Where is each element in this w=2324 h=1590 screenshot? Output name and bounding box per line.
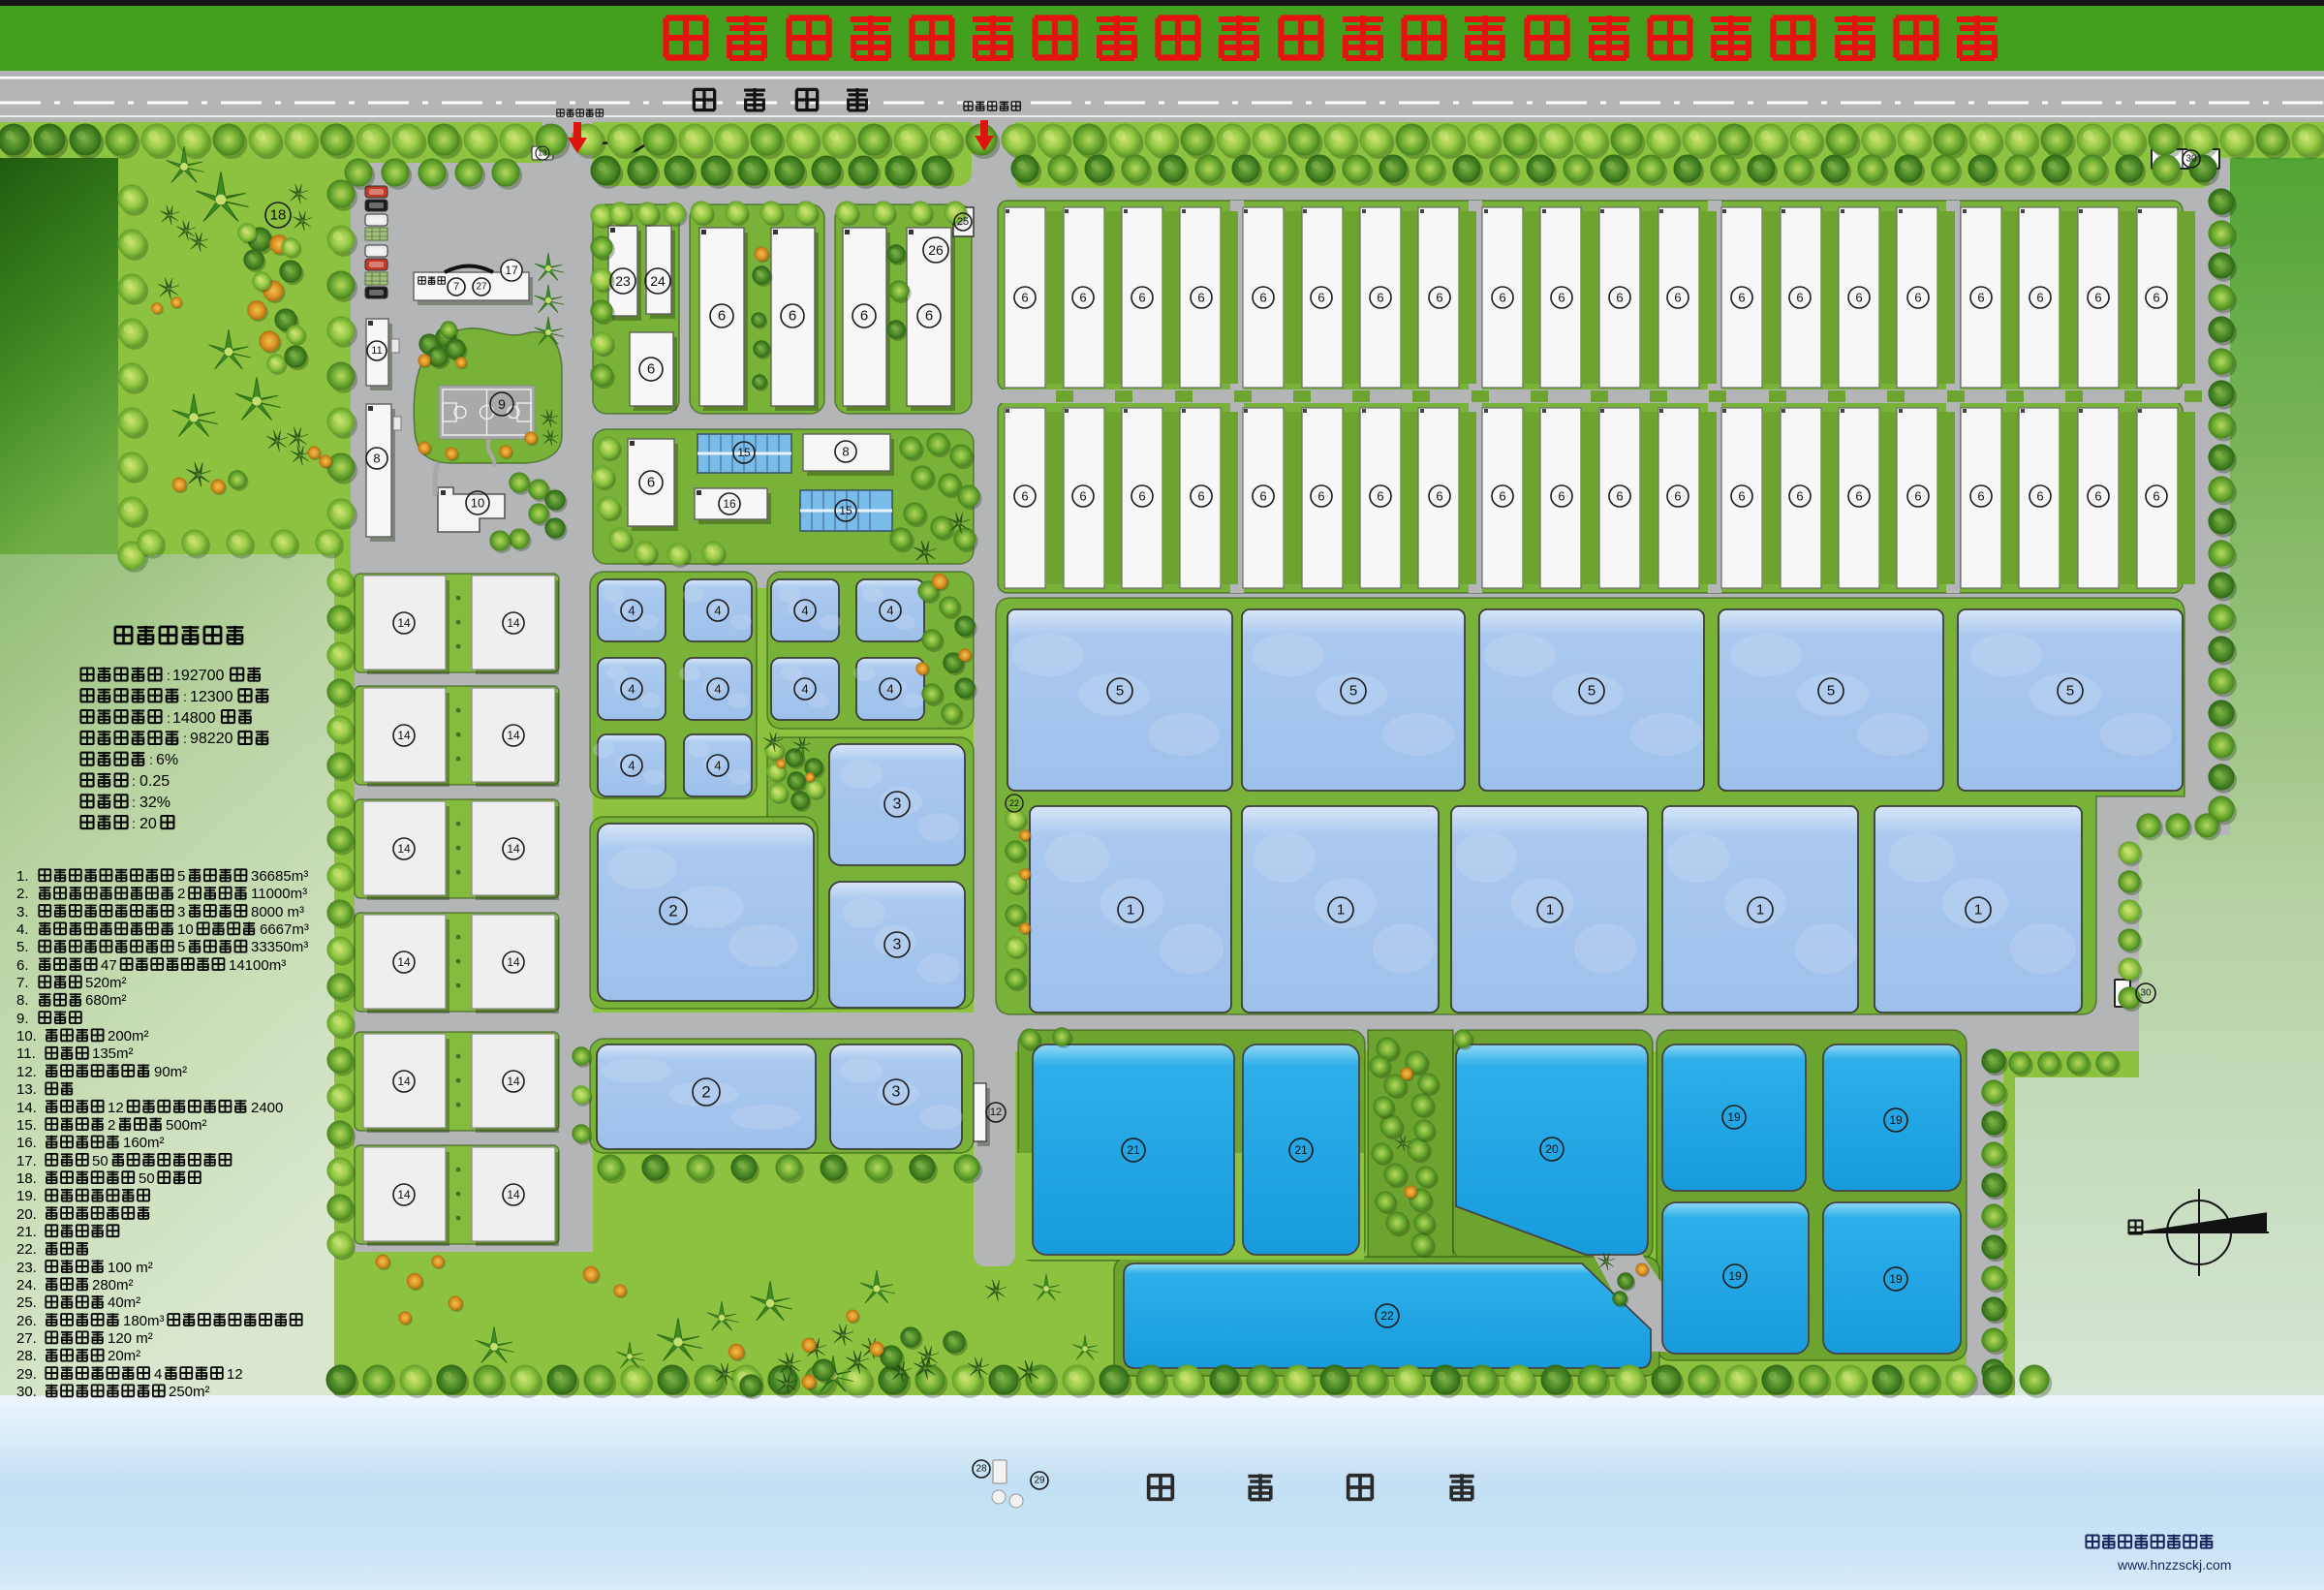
svg-text:14: 14 xyxy=(397,1188,411,1201)
svg-text:3: 3 xyxy=(892,1084,901,1101)
svg-text::: : xyxy=(183,731,187,746)
svg-text:13.: 13. xyxy=(16,1081,37,1098)
svg-text:7: 7 xyxy=(453,281,459,293)
svg-text:13: 13 xyxy=(539,149,547,158)
svg-text:7.: 7. xyxy=(16,975,29,991)
svg-text:6: 6 xyxy=(1855,489,1862,504)
svg-text:19: 19 xyxy=(1727,1110,1741,1124)
svg-text:14: 14 xyxy=(507,955,520,969)
svg-text:1: 1 xyxy=(1337,902,1345,919)
svg-text:20: 20 xyxy=(139,816,157,832)
svg-text:40m²: 40m² xyxy=(108,1294,140,1311)
svg-text:6: 6 xyxy=(1499,489,1505,504)
svg-text:12: 12 xyxy=(108,1100,124,1116)
svg-text:6: 6 xyxy=(1436,291,1442,305)
svg-text:27: 27 xyxy=(476,282,487,293)
svg-text:6: 6 xyxy=(1616,489,1623,504)
svg-text:6667m³: 6667m³ xyxy=(260,921,309,938)
svg-text:6: 6 xyxy=(1855,291,1862,305)
svg-text:2: 2 xyxy=(668,902,677,920)
svg-text:6: 6 xyxy=(1796,489,1803,504)
svg-text:29: 29 xyxy=(1034,1476,1045,1486)
svg-text:30: 30 xyxy=(2185,154,2197,165)
svg-text:5: 5 xyxy=(177,939,185,955)
svg-text:15.: 15. xyxy=(16,1117,37,1134)
svg-text:98220: 98220 xyxy=(190,731,233,747)
svg-text:6: 6 xyxy=(1197,291,1204,305)
svg-text:6%: 6% xyxy=(156,752,178,768)
svg-text:14: 14 xyxy=(507,842,520,856)
svg-text:14: 14 xyxy=(507,1075,520,1088)
svg-text:12: 12 xyxy=(227,1366,243,1383)
svg-text:6: 6 xyxy=(1436,489,1442,504)
svg-text:4: 4 xyxy=(628,604,635,618)
svg-text:6: 6 xyxy=(1138,489,1145,504)
svg-text:250m²: 250m² xyxy=(169,1384,210,1400)
svg-text:6: 6 xyxy=(647,475,655,491)
svg-text:9: 9 xyxy=(498,396,506,412)
svg-text:3.: 3. xyxy=(16,904,29,920)
svg-text:6: 6 xyxy=(1197,489,1204,504)
svg-text::: : xyxy=(132,816,136,831)
svg-text:19.: 19. xyxy=(16,1188,37,1204)
svg-text:192700: 192700 xyxy=(172,668,224,684)
svg-text:1: 1 xyxy=(1756,902,1764,919)
svg-text:20: 20 xyxy=(1545,1142,1559,1156)
svg-text:6: 6 xyxy=(1377,291,1383,305)
svg-text:1: 1 xyxy=(1546,902,1554,919)
svg-text:3: 3 xyxy=(893,937,902,953)
svg-text:21.: 21. xyxy=(16,1224,37,1240)
svg-text:4: 4 xyxy=(714,682,721,697)
svg-text:6: 6 xyxy=(1558,489,1565,504)
svg-text:5.: 5. xyxy=(16,939,29,955)
svg-text:5: 5 xyxy=(177,868,185,885)
svg-text::: : xyxy=(149,752,153,767)
svg-text:5: 5 xyxy=(1116,683,1124,700)
svg-text:16.: 16. xyxy=(16,1135,37,1151)
svg-text:6: 6 xyxy=(2153,489,2159,504)
svg-text:25: 25 xyxy=(957,216,969,228)
svg-text:www.hnzzsckj.com: www.hnzzsckj.com xyxy=(2117,1557,2231,1573)
svg-text:6: 6 xyxy=(1021,489,1028,504)
svg-text:29.: 29. xyxy=(16,1366,37,1383)
svg-text:6: 6 xyxy=(1317,291,1324,305)
svg-text:6: 6 xyxy=(789,308,796,325)
svg-text:2400: 2400 xyxy=(251,1100,283,1116)
svg-text:2: 2 xyxy=(701,1083,710,1102)
svg-text:23: 23 xyxy=(615,273,631,289)
svg-text:16: 16 xyxy=(723,497,736,511)
svg-text:14: 14 xyxy=(397,955,411,969)
svg-text:6: 6 xyxy=(860,308,868,325)
svg-text:12.: 12. xyxy=(16,1064,37,1080)
svg-text:18.: 18. xyxy=(16,1170,37,1187)
svg-text:22.: 22. xyxy=(16,1241,37,1258)
svg-text:4: 4 xyxy=(886,682,893,697)
svg-text:180m³: 180m³ xyxy=(123,1313,165,1329)
svg-text:14: 14 xyxy=(397,842,411,856)
svg-text:4: 4 xyxy=(714,759,721,773)
svg-text:4: 4 xyxy=(801,682,808,697)
svg-text:28.: 28. xyxy=(16,1348,37,1364)
svg-text:3: 3 xyxy=(893,796,902,813)
svg-text:47: 47 xyxy=(101,957,117,974)
svg-text:30.: 30. xyxy=(16,1384,37,1400)
svg-text:160m²: 160m² xyxy=(123,1135,165,1151)
svg-text:6: 6 xyxy=(1079,291,1086,305)
svg-text:30: 30 xyxy=(2140,988,2152,999)
svg-text:50: 50 xyxy=(92,1153,108,1169)
svg-text:17: 17 xyxy=(505,264,518,277)
svg-text:6: 6 xyxy=(1259,489,1266,504)
svg-text:4: 4 xyxy=(628,682,635,697)
svg-text:12: 12 xyxy=(990,1107,1002,1118)
svg-text:1: 1 xyxy=(1974,902,1982,919)
svg-text:26.: 26. xyxy=(16,1313,37,1329)
svg-text::: : xyxy=(167,710,170,726)
svg-text:6: 6 xyxy=(1317,489,1324,504)
svg-text::: : xyxy=(183,689,187,704)
svg-text:6: 6 xyxy=(1138,291,1145,305)
svg-text:1.: 1. xyxy=(16,868,29,885)
svg-text:4: 4 xyxy=(801,604,808,618)
svg-text:6: 6 xyxy=(2036,489,2043,504)
svg-text:8: 8 xyxy=(373,452,380,466)
svg-text:10: 10 xyxy=(177,921,194,938)
svg-text:6: 6 xyxy=(1796,291,1803,305)
svg-text:8: 8 xyxy=(842,445,849,459)
svg-text:17.: 17. xyxy=(16,1153,37,1169)
svg-text:14: 14 xyxy=(507,729,520,742)
svg-text:23.: 23. xyxy=(16,1260,37,1276)
svg-text:14: 14 xyxy=(507,1188,520,1201)
svg-text:4: 4 xyxy=(886,604,893,618)
svg-text:25.: 25. xyxy=(16,1294,37,1311)
svg-text:14.: 14. xyxy=(16,1100,37,1116)
svg-text:19: 19 xyxy=(1889,1272,1903,1286)
svg-text:24: 24 xyxy=(650,273,666,289)
svg-text:10.: 10. xyxy=(16,1028,37,1044)
svg-text::: : xyxy=(167,668,170,683)
svg-text:6: 6 xyxy=(1914,291,1921,305)
svg-text:12300: 12300 xyxy=(190,689,233,705)
svg-text:6: 6 xyxy=(1499,291,1505,305)
svg-text:6: 6 xyxy=(1738,489,1745,504)
svg-text:14800: 14800 xyxy=(172,710,216,727)
svg-text:90m²: 90m² xyxy=(154,1064,187,1080)
svg-text:21: 21 xyxy=(1294,1143,1308,1157)
svg-text:14100m³: 14100m³ xyxy=(229,957,286,974)
svg-text:4.: 4. xyxy=(16,921,29,938)
svg-text:9.: 9. xyxy=(16,1011,29,1027)
svg-text:14: 14 xyxy=(397,729,411,742)
svg-text:2: 2 xyxy=(177,886,185,902)
svg-text:36685m³: 36685m³ xyxy=(251,868,308,885)
svg-text:6: 6 xyxy=(2094,489,2101,504)
svg-text:22: 22 xyxy=(1009,798,1019,808)
svg-text:135m²: 135m² xyxy=(92,1045,134,1062)
svg-text:11.: 11. xyxy=(16,1045,36,1062)
svg-text:6: 6 xyxy=(1377,489,1383,504)
svg-text:8000 m³: 8000 m³ xyxy=(251,904,304,920)
svg-text:15: 15 xyxy=(839,504,852,517)
svg-text:14: 14 xyxy=(397,1075,411,1088)
svg-text:20m²: 20m² xyxy=(108,1348,140,1364)
svg-text::: : xyxy=(132,795,136,810)
svg-text:5: 5 xyxy=(1588,683,1596,700)
svg-text:6: 6 xyxy=(1977,291,1984,305)
svg-text:50: 50 xyxy=(139,1170,155,1187)
svg-text:14: 14 xyxy=(397,616,411,630)
svg-text:4: 4 xyxy=(628,759,635,773)
svg-text:21: 21 xyxy=(1127,1143,1140,1157)
svg-text:8.: 8. xyxy=(16,992,29,1009)
svg-text::: : xyxy=(132,773,136,789)
svg-text:11000m³: 11000m³ xyxy=(251,886,307,902)
svg-text:6: 6 xyxy=(1616,291,1623,305)
svg-text:19: 19 xyxy=(1728,1269,1742,1283)
svg-text:6: 6 xyxy=(718,308,726,325)
svg-text:15: 15 xyxy=(737,446,751,459)
svg-text:3: 3 xyxy=(177,904,185,920)
svg-text:100 m²: 100 m² xyxy=(108,1260,153,1276)
svg-text:5: 5 xyxy=(1827,683,1835,700)
svg-text:4: 4 xyxy=(154,1366,162,1383)
svg-text:6: 6 xyxy=(1021,291,1028,305)
svg-text:28: 28 xyxy=(976,1464,987,1475)
svg-text:6: 6 xyxy=(1738,291,1745,305)
svg-text:6: 6 xyxy=(1674,489,1681,504)
svg-text:32%: 32% xyxy=(139,795,170,811)
svg-text:6: 6 xyxy=(1674,291,1681,305)
svg-text:6.: 6. xyxy=(16,957,29,974)
svg-text:6: 6 xyxy=(647,361,655,378)
svg-text:6: 6 xyxy=(1259,291,1266,305)
svg-text:6: 6 xyxy=(2094,291,2101,305)
svg-text:5: 5 xyxy=(2066,683,2074,700)
svg-text:200m²: 200m² xyxy=(108,1028,149,1044)
svg-text:6: 6 xyxy=(2153,291,2159,305)
svg-text:33350m³: 33350m³ xyxy=(251,939,308,955)
svg-text:19: 19 xyxy=(1889,1113,1903,1127)
svg-text:0.25: 0.25 xyxy=(139,773,170,790)
svg-text:6: 6 xyxy=(1079,489,1086,504)
svg-text:24.: 24. xyxy=(16,1277,37,1294)
svg-text:2.: 2. xyxy=(16,886,29,902)
svg-text:4: 4 xyxy=(714,604,721,618)
svg-text:2: 2 xyxy=(108,1117,115,1134)
svg-text:10: 10 xyxy=(471,496,484,511)
svg-text:5: 5 xyxy=(1349,683,1357,700)
svg-text:26: 26 xyxy=(928,242,944,258)
svg-text:6: 6 xyxy=(925,308,933,325)
svg-text:14: 14 xyxy=(507,616,520,630)
svg-text:6: 6 xyxy=(1977,489,1984,504)
svg-text:1: 1 xyxy=(1127,902,1134,919)
svg-text:20.: 20. xyxy=(16,1206,37,1223)
svg-text:280m²: 280m² xyxy=(92,1277,134,1294)
svg-text:6: 6 xyxy=(1558,291,1565,305)
svg-text:500m²: 500m² xyxy=(166,1117,207,1134)
svg-text:6: 6 xyxy=(2036,291,2043,305)
svg-text:6: 6 xyxy=(1914,489,1921,504)
svg-text:520m²: 520m² xyxy=(85,975,127,991)
svg-text:120 m²: 120 m² xyxy=(108,1330,153,1347)
svg-text:11: 11 xyxy=(371,345,382,357)
svg-text:27.: 27. xyxy=(16,1330,37,1347)
svg-text:22: 22 xyxy=(1380,1309,1394,1323)
svg-text:18: 18 xyxy=(270,207,287,224)
svg-text:680m²: 680m² xyxy=(85,992,127,1009)
